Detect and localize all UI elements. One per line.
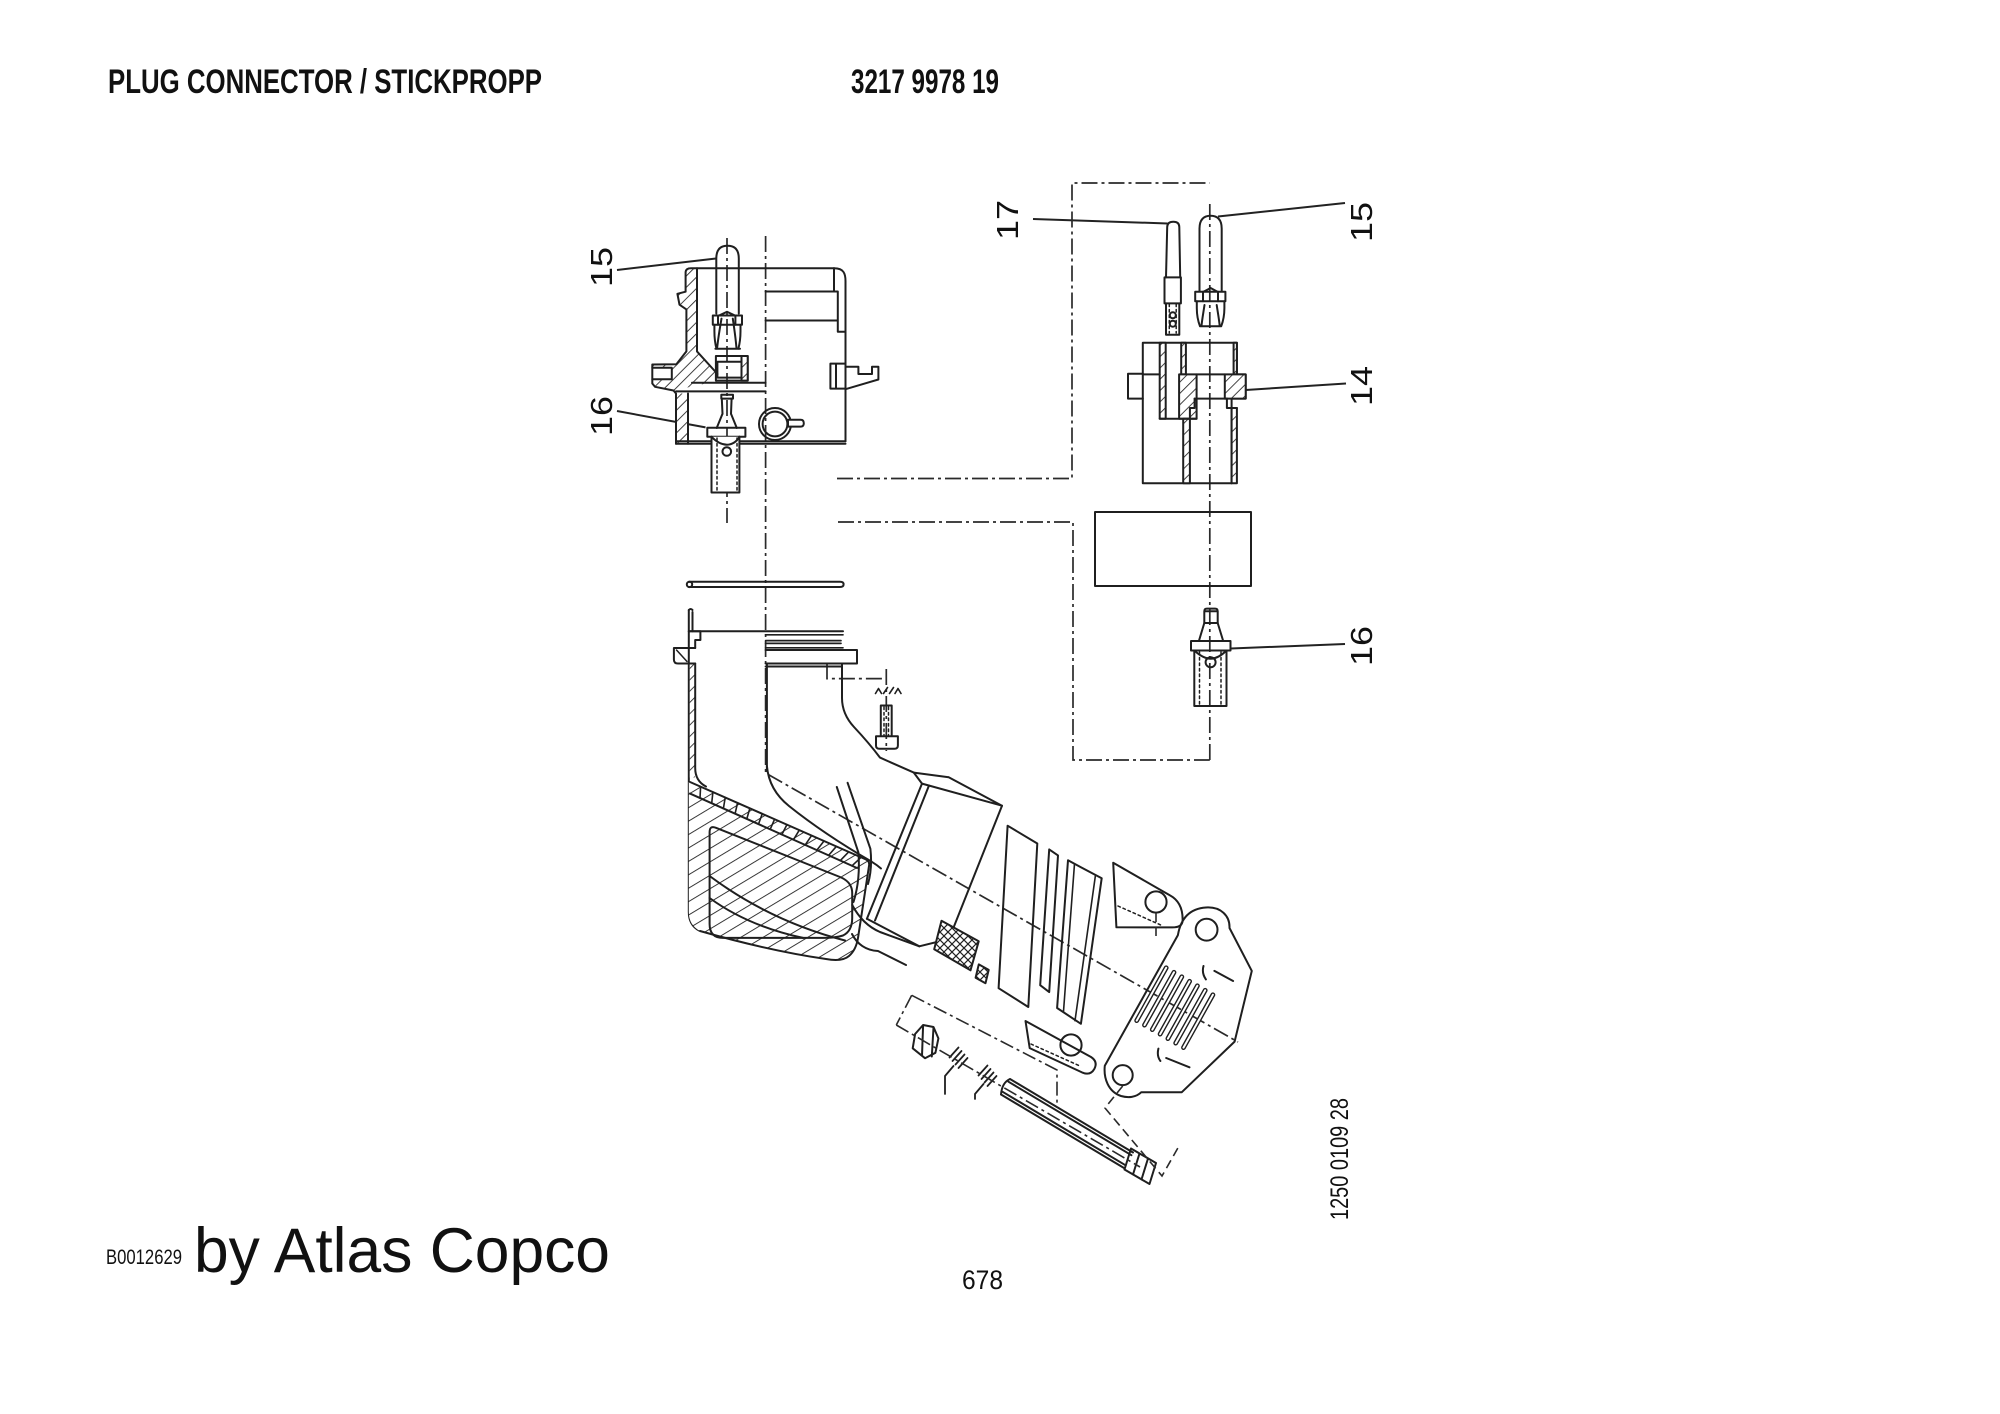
svg-text:PLUG CONNECTOR / STICKPROPP: PLUG CONNECTOR / STICKPROPP (108, 63, 542, 101)
svg-text:15: 15 (584, 247, 619, 287)
svg-text:678: 678 (962, 1265, 1003, 1295)
svg-text:15: 15 (1344, 202, 1379, 242)
svg-text:by Atlas Copco: by Atlas Copco (194, 1216, 610, 1286)
svg-text:17: 17 (990, 200, 1025, 240)
svg-text:16: 16 (584, 396, 619, 436)
svg-text:3217 9978 19: 3217 9978 19 (851, 63, 999, 101)
svg-text:14: 14 (1344, 366, 1379, 406)
svg-text:16: 16 (1344, 626, 1379, 666)
svg-text:1250 0109 28: 1250 0109 28 (1326, 1098, 1354, 1220)
svg-text:B0012629: B0012629 (106, 1246, 182, 1269)
